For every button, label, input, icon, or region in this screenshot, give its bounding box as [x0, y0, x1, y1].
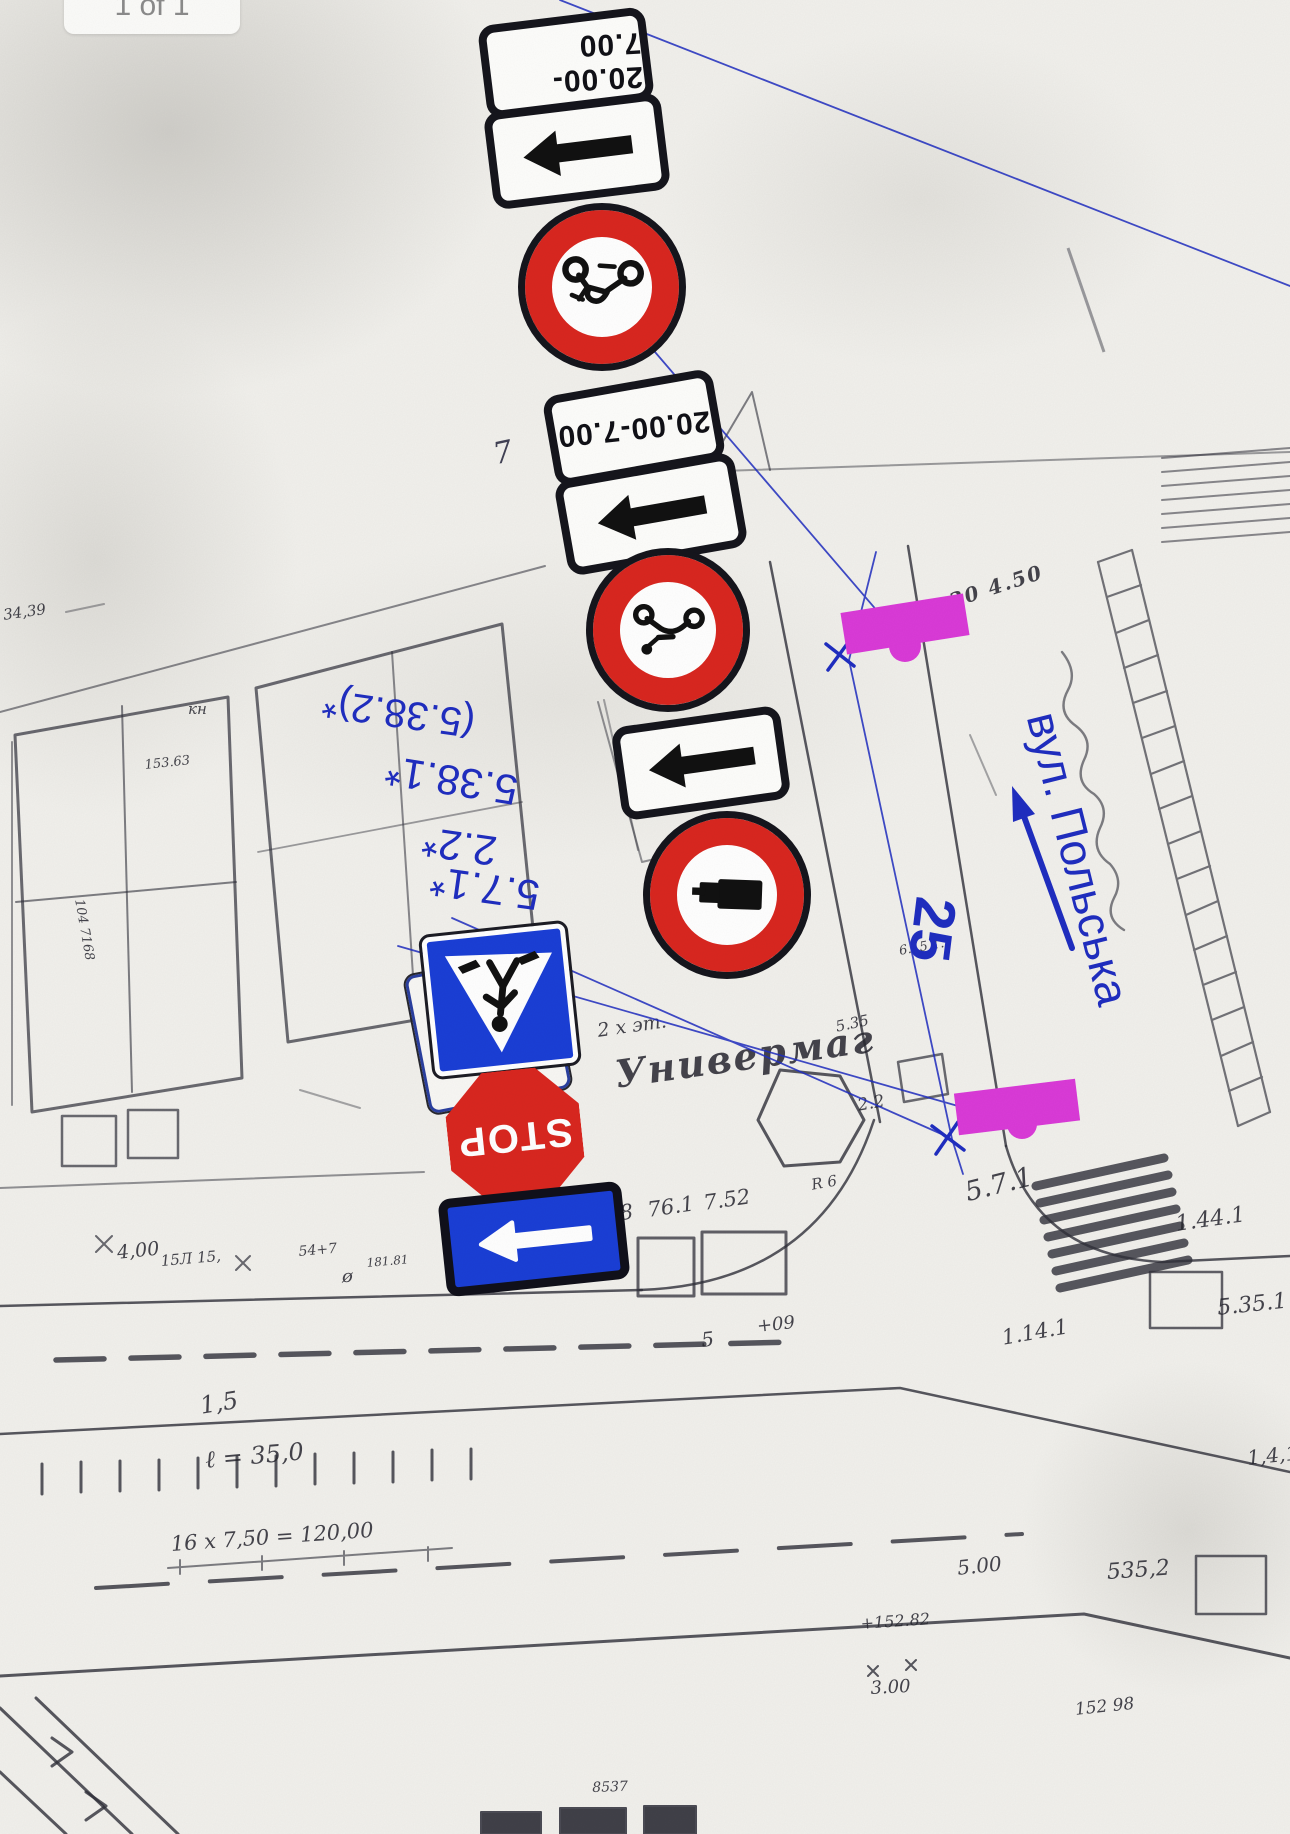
- direction-plate-sign: [483, 92, 672, 211]
- sign-post-marker-dot: [889, 630, 921, 662]
- page-indicator-text: 1 of 1: [114, 0, 189, 23]
- no-motorcycles-sign: [518, 203, 686, 371]
- map-label: 5: [700, 1327, 715, 1352]
- no-mopeds-sign: [586, 548, 750, 712]
- map-label: 76.1: [646, 1191, 696, 1221]
- map-label: 1,4,1: [1246, 1441, 1290, 1470]
- map-label: 153.63: [144, 753, 191, 773]
- direction-plate-sign: [610, 705, 791, 822]
- map-label: +152.82: [860, 1609, 931, 1633]
- post-location-x-marks: [826, 640, 964, 1154]
- map-label: 2.2: [856, 1091, 886, 1115]
- sign-code-label: 5.7.1*: [427, 857, 542, 920]
- map-label: 1.14.1: [1000, 1314, 1070, 1349]
- motorcycle-icon: [554, 251, 650, 323]
- map-label: 1,5: [198, 1386, 240, 1420]
- map-label: +09: [756, 1312, 796, 1337]
- map-label: 535,2: [1106, 1556, 1171, 1585]
- map-label: 54+7: [298, 1241, 338, 1260]
- map-label: 3.00: [870, 1676, 911, 1699]
- map-label: 7.52: [702, 1184, 752, 1214]
- map-label: 16 х 7,50 = 120,00: [170, 1518, 374, 1556]
- map-label: 5.7.1: [962, 1161, 1036, 1208]
- left-arrow-icon: [498, 104, 656, 198]
- paper-shading: [180, 540, 940, 860]
- page-indicator: 1 of 1: [64, 0, 240, 34]
- sign-code-label: (5.38.2)*: [320, 680, 478, 746]
- map-label: 1.44.1: [1174, 1202, 1247, 1236]
- map-label: R 6: [810, 1172, 838, 1194]
- map-label: 104 7168: [71, 898, 97, 962]
- time-plate-text: 20.00-7.00: [488, 25, 643, 101]
- distance-dimension-label: 25: [895, 893, 969, 965]
- no-trucks-sign: [643, 811, 811, 979]
- map-label: 4,00: [116, 1238, 160, 1264]
- map-label: 34,39: [2, 600, 47, 624]
- map-label: 5.35.1: [1216, 1289, 1288, 1321]
- map-label: 152 98: [1074, 1694, 1135, 1720]
- moped-icon: [621, 595, 715, 665]
- map-label: 8537: [592, 1779, 628, 1796]
- map-label: 7: [490, 434, 516, 472]
- map-label: 15Л 15,: [160, 1247, 222, 1270]
- map-label: ø: [342, 1266, 353, 1287]
- map-label: ℓ = 35,0: [204, 1437, 305, 1475]
- pedestrian-crossing-sign: [421, 923, 579, 1077]
- paper-shading: [0, 0, 540, 420]
- pedestrian-crossing-icon: [439, 941, 561, 1059]
- left-arrow-icon: [624, 716, 779, 810]
- map-label: 2 х эт.: [596, 1010, 668, 1041]
- street-name-label: вул. Польська: [1016, 706, 1141, 1010]
- paper-shading: [660, 30, 1180, 370]
- map-label: кн: [188, 700, 207, 718]
- sign-post-marker-dot: [1007, 1109, 1037, 1139]
- left-arrow-icon: [452, 1195, 617, 1283]
- stop-sign-text: STOP: [455, 1109, 575, 1166]
- map-label: 181.81: [366, 1252, 409, 1270]
- paper-shading: [0, 300, 300, 820]
- truck-icon: [680, 860, 774, 929]
- map-label: 5.00: [956, 1551, 1003, 1580]
- scanned-traffic-scheme-page: Универмаг 2 х эт. 5,98 76.1 7.52 5.7.1 1…: [0, 0, 1290, 1834]
- one-way-road-sign: [437, 1181, 630, 1298]
- paper-shading: [1020, 1360, 1290, 1700]
- time-plate-text: 20.00-7.00: [556, 403, 712, 453]
- sign-code-label: 5.38.1*: [382, 746, 521, 814]
